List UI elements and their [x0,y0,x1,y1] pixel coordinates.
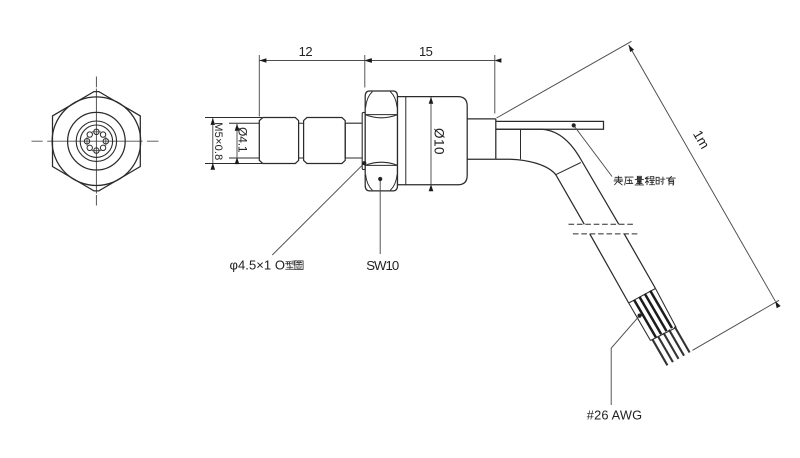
svg-text:SW10: SW10 [366,258,399,273]
svg-text:#26 AWG: #26 AWG [587,408,642,423]
svg-text:Ø4.1: Ø4.1 [236,127,250,153]
svg-text:1m: 1m [690,128,712,152]
svg-text:φ4.5×1 O: φ4.5×1 O [230,258,286,273]
svg-text:M5×0.8: M5×0.8 [212,122,224,160]
svg-text:Ø10: Ø10 [431,128,446,155]
svg-text:15: 15 [419,44,433,59]
svg-text:12: 12 [299,44,313,59]
